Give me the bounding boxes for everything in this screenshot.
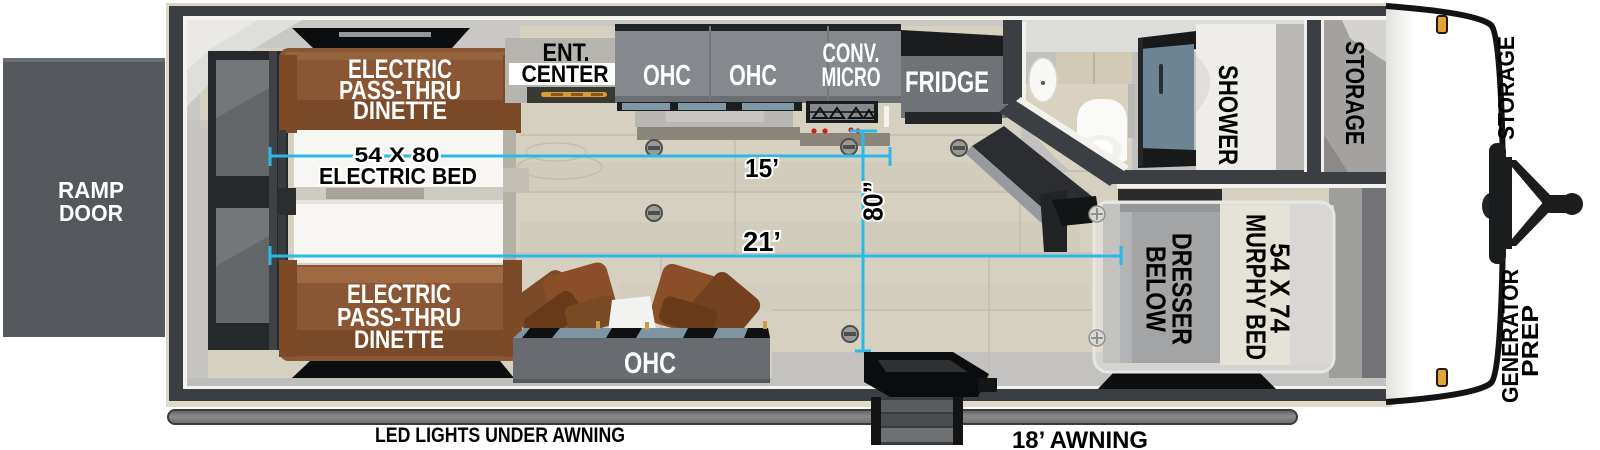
svg-text:SHOWER: SHOWER [1213,65,1243,165]
svg-text:18’ AWNING: 18’ AWNING [1012,427,1148,450]
svg-text:15’: 15’ [745,153,779,183]
svg-text:ELECTRIC BED: ELECTRIC BED [319,163,477,189]
svg-text:80”: 80” [857,181,888,221]
svg-text:DOOR: DOOR [59,200,123,226]
svg-text:FRIDGE: FRIDGE [905,66,989,99]
svg-text:STORAGE: STORAGE [1340,41,1370,145]
svg-text:MURPHY BED: MURPHY BED [1241,214,1272,360]
svg-text:BELOW: BELOW [1141,246,1172,332]
svg-text:LED LIGHTS UNDER AWNING: LED LIGHTS UNDER AWNING [375,424,625,447]
svg-text:DINETTE: DINETTE [354,326,444,354]
svg-text:OHC: OHC [643,60,691,92]
svg-text:PREP: PREP [1517,305,1543,377]
svg-text:OHC: OHC [729,60,777,92]
svg-text:CENTER: CENTER [522,61,609,88]
svg-text:OHC: OHC [624,347,676,380]
svg-text:STORAGE: STORAGE [1493,36,1519,140]
svg-text:21’: 21’ [743,226,781,257]
svg-text:DINETTE: DINETTE [353,97,447,125]
svg-text:MICRO: MICRO [822,62,881,92]
